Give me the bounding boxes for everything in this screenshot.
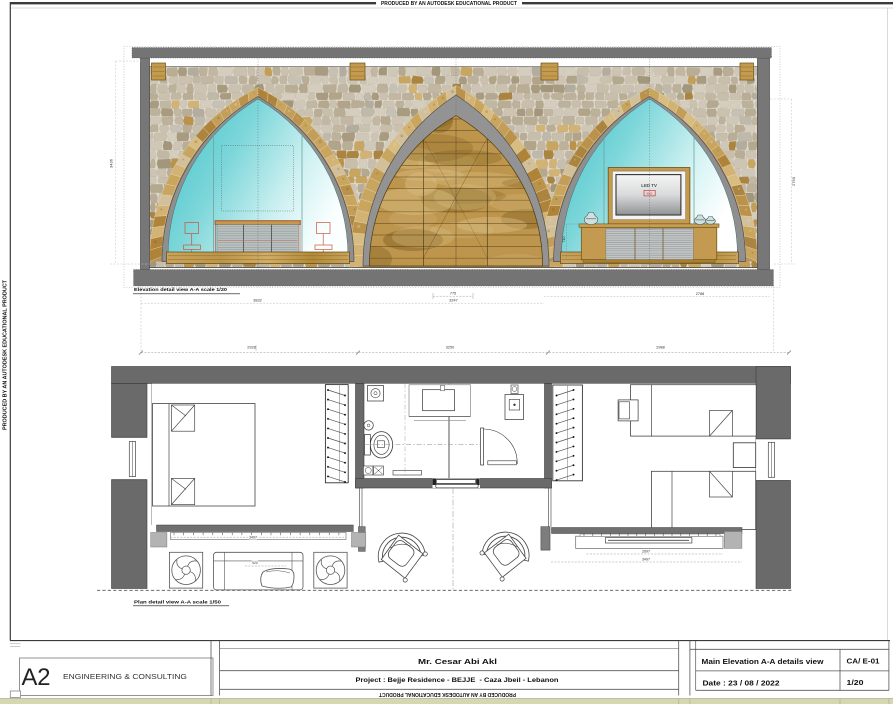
svg-text:3250: 3250 <box>446 346 454 350</box>
svg-text:Date : 23 / 08 / 2022: Date : 23 / 08 / 2022 <box>703 680 780 687</box>
svg-text:3247: 3247 <box>449 299 457 303</box>
svg-text:2697: 2697 <box>642 549 650 553</box>
svg-text:Mr. Cesar Abi Akl: Mr. Cesar Abi Akl <box>418 657 497 666</box>
svg-text:Elevation detail view A-A scal: Elevation detail view A-A scale 1/20 <box>134 287 227 293</box>
svg-text:775: 775 <box>450 291 456 295</box>
svg-text:3497: 3497 <box>642 557 650 561</box>
svg-text:ENGINEERING & CONSULTING: ENGINEERING & CONSULTING <box>63 672 187 681</box>
svg-text:710: 710 <box>562 237 566 243</box>
svg-text:PRODUCED BY AN AUTODESK EDUCAT: PRODUCED BY AN AUTODESK EDUCATIONAL PROD… <box>381 1 517 7</box>
svg-text:LED TV: LED TV <box>641 183 657 188</box>
svg-text:2988: 2988 <box>656 346 664 350</box>
svg-text:3436: 3436 <box>109 158 114 168</box>
svg-text:3832: 3832 <box>253 299 261 303</box>
svg-text:Main Elevation A-A details vie: Main Elevation A-A details view <box>702 659 825 666</box>
svg-text:2750: 2750 <box>791 176 796 186</box>
svg-text:CA/ E-01: CA/ E-01 <box>847 659 880 666</box>
svg-text:1/20: 1/20 <box>847 680 864 687</box>
svg-text:Plan detail view A-A scale 1/5: Plan detail view A-A scale 1/50 <box>134 599 221 605</box>
svg-text:9001: 9001 <box>646 192 653 196</box>
svg-text:2788: 2788 <box>696 292 704 296</box>
svg-text:PRODUCED BY AN AUTODESK EDUCAT: PRODUCED BY AN AUTODESK EDUCATIONAL PROD… <box>378 691 516 697</box>
svg-text:3497: 3497 <box>249 536 257 540</box>
svg-text:2928: 2928 <box>247 346 255 350</box>
svg-text:920: 920 <box>252 561 258 565</box>
svg-text:A2: A2 <box>21 664 50 691</box>
svg-text:PRODUCED BY AN AUTODESK EDUCAT: PRODUCED BY AN AUTODESK EDUCATIONAL PROD… <box>3 279 9 430</box>
svg-text:Project : Bejje Residence - BE: Project : Bejje Residence - BEJJE - Caza… <box>356 677 559 684</box>
